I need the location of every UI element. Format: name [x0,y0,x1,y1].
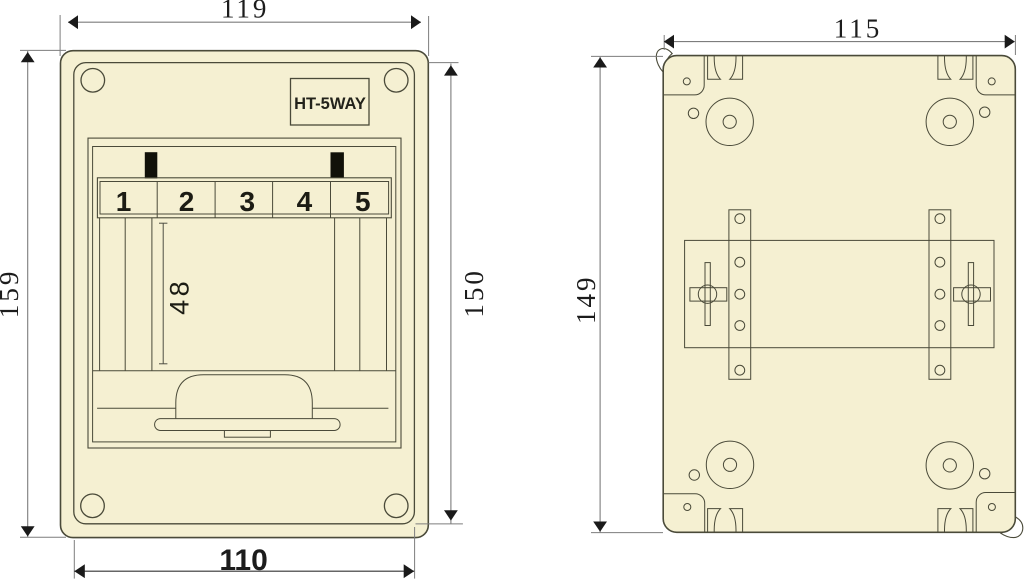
svg-text:115: 115 [834,13,883,43]
svg-text:119: 119 [221,0,270,24]
svg-text:1: 1 [116,186,132,217]
svg-text:5: 5 [355,186,371,217]
svg-text:159: 159 [0,269,24,319]
svg-text:3: 3 [240,186,256,217]
svg-text:HT-5WAY: HT-5WAY [294,95,366,113]
svg-text:149: 149 [571,275,601,325]
svg-text:110: 110 [219,544,267,577]
svg-text:2: 2 [179,186,195,217]
svg-text:48: 48 [165,278,195,315]
svg-text:4: 4 [297,186,313,217]
svg-text:150: 150 [459,268,489,318]
